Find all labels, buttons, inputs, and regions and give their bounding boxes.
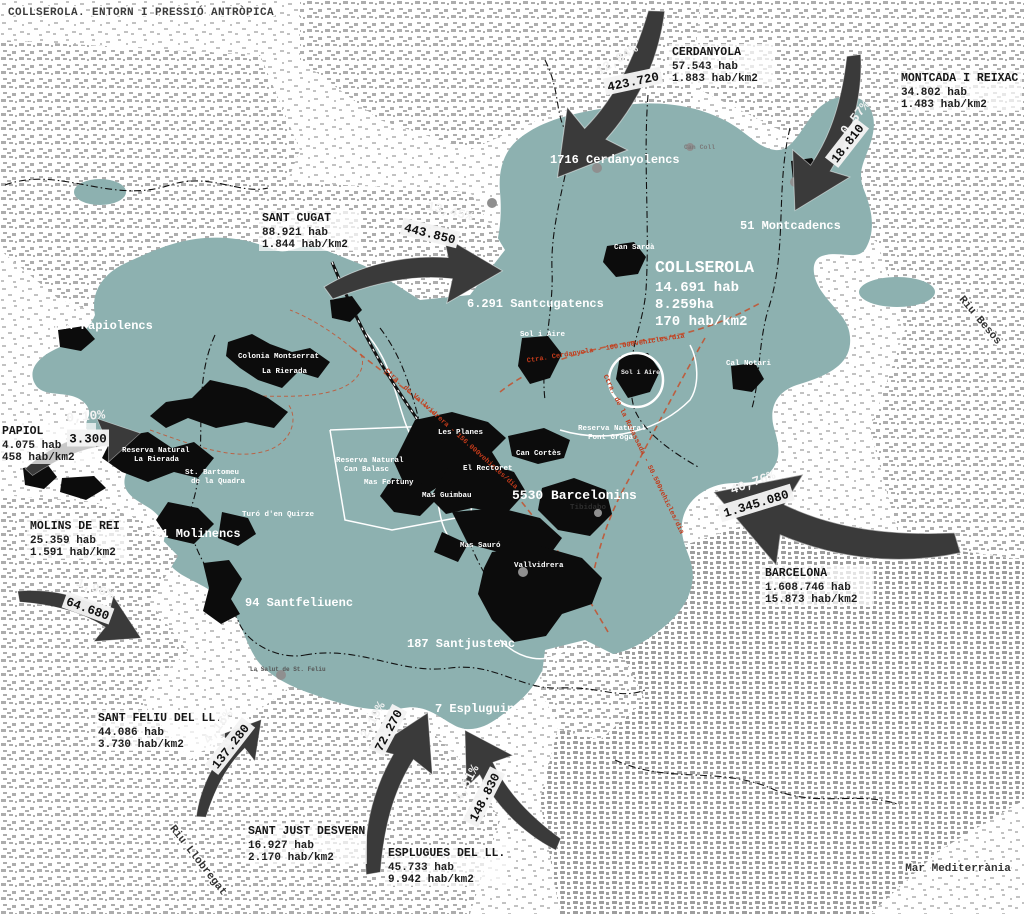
muni-label-montcada: MONTCADA I REIXAC 34.802 hab 1.483 hab/k…	[898, 70, 1022, 111]
park-name: COLLSEROLA	[655, 258, 754, 277]
district-espluguins: 7 Espluguins	[435, 702, 521, 716]
district-montcadencs: 51 Montcadencs	[740, 219, 841, 233]
svg-text:1.483 hab/km2: 1.483 hab/km2	[901, 99, 987, 111]
svg-text:SANT FELIU DEL LL.: SANT FELIU DEL LL.	[98, 712, 222, 725]
svg-text:45.733 hab: 45.733 hab	[388, 862, 454, 874]
place-can-sarda: Can Sardà	[614, 244, 655, 252]
svg-text:1.844 hab/km2: 1.844 hab/km2	[262, 239, 348, 251]
svg-text:Reserva Natural: Reserva Natural	[578, 425, 646, 433]
page-title: COLLSEROLA. ENTORN I PRESSIÓ ANTRÒPICA	[8, 5, 274, 19]
place-mas-fortuny: Mas Fortuny	[364, 479, 414, 487]
muni-label-sant-cugat: SANT CUGAT 88.921 hab 1.844 hab/km2	[259, 210, 359, 251]
svg-text:SANT CUGAT: SANT CUGAT	[262, 212, 331, 225]
svg-text:ESPLUGUES DEL LL.: ESPLUGUES DEL LL.	[388, 847, 505, 860]
map-canvas: Ctra. de Vallvidrera - 156.000vehicles/d…	[0, 0, 1024, 914]
place-la-rierada: La Rierada	[262, 368, 308, 376]
svg-text:PAPIOL: PAPIOL	[2, 425, 44, 438]
place-mas-sauro: Mas Sauró	[460, 542, 501, 550]
place-tibidabo: Tibidabo	[570, 504, 607, 512]
svg-text:88.921 hab: 88.921 hab	[262, 227, 328, 239]
svg-text:MOLINS DE REI: MOLINS DE REI	[30, 520, 120, 533]
svg-text:de la Quadra: de la Quadra	[191, 478, 246, 486]
place-can-cortes: Can Cortès	[516, 450, 562, 458]
park-hab: 14.691 hab	[655, 280, 739, 296]
svg-text:Font Groga: Font Groga	[588, 434, 634, 442]
label-mar-mediterrania: Mar Mediterrània	[905, 863, 1011, 875]
district-molinencs: 701 Molinencs	[147, 527, 241, 541]
park-density: 170 hab/km2	[655, 314, 747, 330]
place-vallvidrera: Vallvidrera	[514, 562, 564, 570]
svg-text:44.086 hab: 44.086 hab	[98, 727, 164, 739]
svg-text:9.942 hab/km2: 9.942 hab/km2	[388, 874, 474, 886]
svg-text:BARCELONA: BARCELONA	[765, 567, 827, 580]
district-santjustenc: 187 Santjustenc	[407, 637, 515, 651]
place-mas-guimbau: Mas Guimbau	[422, 492, 472, 500]
svg-text:3.730 hab/km2: 3.730 hab/km2	[98, 739, 184, 751]
place-st-bartomeu: St. Bartomeu	[185, 469, 239, 477]
svg-text:Can Balasc: Can Balasc	[344, 466, 390, 474]
district-barcelonins: 5530 Barcelonins	[512, 488, 637, 503]
svg-text:57.543 hab: 57.543 hab	[672, 61, 738, 73]
svg-text:15.873 hab/km2: 15.873 hab/km2	[765, 594, 857, 606]
place-cal-notari: Cal Notari	[726, 360, 772, 368]
muni-label-cerdanyola: CERDANYOLA 57.543 hab 1.883 hab/km2	[669, 44, 773, 85]
place-el-rectoret: El Rectoret	[463, 465, 513, 473]
district-santfeliuenc: 94 Santfeliuenc	[245, 596, 353, 610]
muni-label-esplugues: ESPLUGUES DEL LL. 45.733 hab 9.942 hab/k…	[385, 845, 507, 886]
park-fragment	[859, 277, 935, 307]
district-santcugatencs: 6.291 Santcugatencs	[467, 297, 604, 311]
place-can-coll: Can Coll	[684, 144, 715, 151]
svg-text:CERDANYOLA: CERDANYOLA	[672, 46, 741, 59]
place-turo-den-quirze: Turó d'en Quirze	[242, 511, 315, 519]
collserola-map: Ctra. de Vallvidrera - 156.000vehicles/d…	[0, 0, 1024, 914]
svg-text:1.883 hab/km2: 1.883 hab/km2	[672, 73, 758, 85]
muni-label-sant-just: SANT JUST DESVERN 16.927 hab 2.170 hab/k…	[245, 823, 367, 864]
muni-label-barcelona: BARCELONA 1.608.746 hab 15.873 hab/km2	[762, 565, 874, 606]
svg-text:34.802 hab: 34.802 hab	[901, 87, 967, 99]
svg-text:4.075 hab: 4.075 hab	[2, 440, 62, 452]
svg-text:La Rierada: La Rierada	[134, 456, 180, 464]
svg-text:Reserva Natural: Reserva Natural	[336, 457, 404, 465]
place-sol-i-aire-circled: Sol i Aire	[621, 369, 660, 376]
svg-text:458 hab/km2: 458 hab/km2	[2, 452, 75, 464]
svg-text:2.170 hab/km2: 2.170 hab/km2	[248, 852, 334, 864]
place-la-salut: La Salut de St. Feliu	[250, 666, 326, 673]
svg-text:SANT JUST DESVERN: SANT JUST DESVERN	[248, 825, 365, 838]
svg-text:1.591 hab/km2: 1.591 hab/km2	[30, 547, 116, 559]
svg-text:16.927 hab: 16.927 hab	[248, 840, 314, 852]
svg-text:MONTCADA I REIXAC: MONTCADA I REIXAC	[901, 72, 1018, 85]
park-fragment	[74, 179, 126, 205]
muni-label-molins: MOLINS DE REI 25.359 hab 1.591 hab/km2	[27, 518, 127, 559]
district-cerdanyolencs: 1716 Cerdanyolencs	[550, 153, 680, 167]
svg-text:25.359 hab: 25.359 hab	[30, 535, 96, 547]
svg-text:3.300: 3.300	[69, 433, 107, 447]
park-area: 8.259ha	[655, 297, 714, 313]
svg-text:Reserva Natural: Reserva Natural	[122, 447, 190, 455]
place-sol-i-aire: Sol i Aire	[520, 331, 566, 339]
place-colonia-montserrat: Colonia Montserrat	[238, 353, 319, 361]
svg-text:1.608.746 hab: 1.608.746 hab	[765, 582, 851, 594]
place-les-planes: Les Planes	[438, 429, 484, 437]
district-papiolencs: 114 Papiolencs	[52, 319, 153, 333]
